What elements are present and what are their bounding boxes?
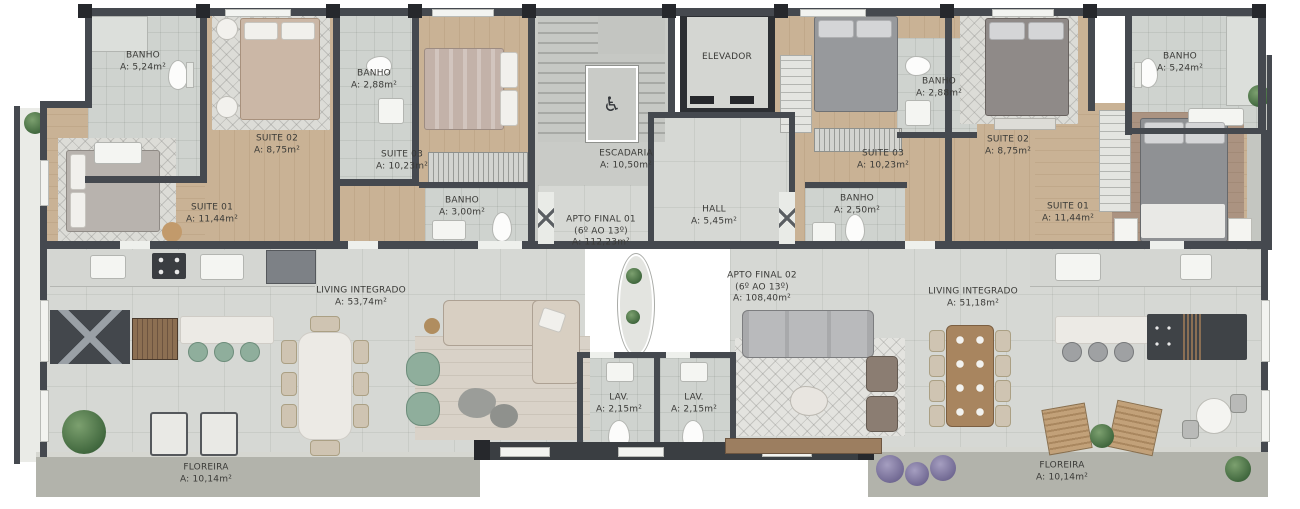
door-gap xyxy=(478,241,522,249)
unit-floors: (6º AO 13º) xyxy=(566,226,636,238)
vanity-sink xyxy=(432,220,466,240)
room-name: LIVING INTEGRADO xyxy=(316,285,406,297)
wall-hall-top xyxy=(648,112,795,118)
room-area: A: 5,45m² xyxy=(691,216,737,228)
window xyxy=(40,300,49,362)
room-name: LAV. xyxy=(596,392,642,404)
tv-console xyxy=(725,438,882,454)
pillow xyxy=(500,52,518,88)
pier xyxy=(522,4,536,18)
room-name: HALL xyxy=(691,204,737,216)
grill-module xyxy=(50,310,130,364)
room-area: A: 11,44m² xyxy=(186,214,238,226)
room-area: A: 2,50m² xyxy=(834,205,880,217)
unit-label-apto2: APTO FINAL 02 (6º AO 13º) A: 108,40m² xyxy=(727,270,797,305)
lounge-chair xyxy=(150,412,188,456)
wall-segment xyxy=(1125,8,1132,135)
dining-chair xyxy=(281,404,297,428)
dining-chair xyxy=(310,440,340,456)
island-counter-apto2 xyxy=(1055,316,1149,344)
entry-door-apto1 xyxy=(538,192,554,244)
lavender-plant xyxy=(930,455,956,481)
room-area: A: 10,14m² xyxy=(180,474,232,486)
toilet-tank xyxy=(186,62,194,88)
lav1-door xyxy=(590,352,614,358)
dining-chair xyxy=(281,340,297,364)
wall-segment xyxy=(333,8,340,248)
room-area: A: 10,14m² xyxy=(1036,472,1088,484)
dining-table-apto2 xyxy=(946,325,994,427)
wall-banho300-top xyxy=(419,182,532,188)
nightstand xyxy=(1114,218,1138,242)
lounge-chair xyxy=(200,412,238,456)
unit-area: A: 112,23m² xyxy=(566,238,636,250)
shrub-plant xyxy=(1225,456,1251,482)
lounge-plant xyxy=(1090,424,1114,448)
room-label-lav-apto1: LAV. A: 2,15m² xyxy=(596,392,642,415)
dining-chair xyxy=(281,372,297,396)
unit-label-apto1: APTO FINAL 01 (6º AO 13º) A: 112,23m² xyxy=(566,214,636,249)
stool xyxy=(1062,342,1082,362)
room-label-banho250-apto2: BANHO A: 2,50m² xyxy=(834,193,880,216)
room-area: A: 2,15m² xyxy=(596,404,642,416)
vanity-sink xyxy=(94,142,142,164)
dining-chair xyxy=(353,372,369,396)
nightstand xyxy=(1228,218,1252,242)
window xyxy=(992,9,1054,17)
wall-lav-mid xyxy=(654,352,660,452)
pier xyxy=(326,4,340,18)
stool xyxy=(240,342,260,362)
pillow xyxy=(500,90,518,126)
lavender-plant xyxy=(876,455,904,483)
pier xyxy=(1252,4,1266,18)
clothes-rack xyxy=(428,152,528,184)
room-name: SUITE 02 xyxy=(254,133,300,145)
room-name: LIVING INTEGRADO xyxy=(928,286,1018,298)
dining-chair xyxy=(310,316,340,332)
room-name: BANHO xyxy=(834,193,880,205)
charcoal-grill xyxy=(132,318,178,360)
room-area: A: 51,18m² xyxy=(928,298,1018,310)
room-area: A: 53,74m² xyxy=(316,297,406,309)
armchair-green xyxy=(406,352,440,386)
room-area: A: 10,23m² xyxy=(857,160,909,172)
kitchen-sink xyxy=(90,255,126,279)
lavender-plant xyxy=(905,462,929,486)
dining-chair xyxy=(929,330,945,352)
room-name: FLOREIRA xyxy=(180,462,232,474)
window xyxy=(40,160,49,206)
pier xyxy=(78,4,92,18)
pier xyxy=(774,4,788,18)
dining-chair xyxy=(995,330,1011,352)
wall-segment xyxy=(945,8,952,247)
pillow xyxy=(244,22,278,40)
pillow xyxy=(70,192,86,228)
wall-right-upper xyxy=(1258,8,1266,133)
toilet-tank xyxy=(1134,62,1142,88)
pier xyxy=(662,4,676,18)
room-label-suite03-apto2: SUITE 03 A: 10,23m² xyxy=(857,148,909,171)
wall-left-upper xyxy=(85,8,92,108)
dining-chair xyxy=(353,340,369,364)
room-name: BANHO xyxy=(120,50,166,62)
kitchen-sink xyxy=(1180,254,1212,280)
sliding-door xyxy=(500,447,550,457)
wall-segment xyxy=(200,8,207,180)
wall-banho288l-bottom xyxy=(338,179,419,186)
window xyxy=(1261,390,1270,442)
coffee-table xyxy=(790,386,828,416)
dining-chair xyxy=(929,405,945,427)
wall-segment xyxy=(1088,8,1095,111)
room-label-floreira-left: FLOREIRA A: 10,14m² xyxy=(180,462,232,485)
sliding-door xyxy=(618,447,664,457)
grill-station xyxy=(1147,314,1247,360)
pouf xyxy=(216,18,238,40)
pillow xyxy=(856,20,892,38)
room-label-lav-apto2: LAV. A: 2,15m² xyxy=(671,392,717,415)
room-label-banho-tl: BANHO A: 5,24m² xyxy=(120,50,166,73)
wall-terrace-left xyxy=(14,106,20,464)
double-sink xyxy=(1055,253,1101,281)
room-name: ESCADARIA xyxy=(599,148,653,160)
wall-lav-left xyxy=(577,352,583,452)
entry-door-apto2 xyxy=(779,192,795,244)
room-label-suite02-apto2: SUITE 02 A: 8,75m² xyxy=(985,134,1031,157)
pillow xyxy=(818,20,854,38)
room-area: A: 11,44m² xyxy=(1042,213,1094,225)
pillow xyxy=(1028,22,1064,40)
room-name: SUITE 01 xyxy=(186,202,238,214)
dining-chair xyxy=(929,355,945,377)
room-label-banho-tr: BANHO A: 5,24m² xyxy=(1157,51,1203,74)
room-name: FLOREIRA xyxy=(1036,460,1088,472)
room-name: BANHO xyxy=(439,195,485,207)
stool xyxy=(214,342,234,362)
pillow xyxy=(70,154,86,190)
pillow xyxy=(989,22,1025,40)
floor-plant xyxy=(62,410,106,454)
unit-name: APTO FINAL 01 xyxy=(566,214,636,226)
wall-segment xyxy=(668,8,675,115)
room-label-suite01-apto1: SUITE 01 A: 11,44m² xyxy=(186,202,238,225)
room-label-floreira-right: FLOREIRA A: 10,14m² xyxy=(1036,460,1088,483)
floor-plan: ♿ xyxy=(0,0,1300,509)
bed-suite03-apto1 xyxy=(424,48,504,130)
room-name: SUITE 03 xyxy=(857,148,909,160)
window xyxy=(800,9,866,17)
room-label-banho288-apto2: BANHO A: 2,88m² xyxy=(916,76,962,99)
stool xyxy=(1088,342,1108,362)
slat-lounge-chair xyxy=(1108,400,1163,457)
room-name: BANHO xyxy=(1157,51,1203,63)
fridge xyxy=(266,250,316,284)
armchair-brown xyxy=(866,396,898,432)
room-name: ELEVADOR xyxy=(702,52,752,64)
unit-floors: (6º AO 13º) xyxy=(727,282,797,294)
room-label-suite02-apto1: SUITE 02 A: 8,75m² xyxy=(254,133,300,156)
stair-landing xyxy=(598,14,665,54)
coffee-table xyxy=(490,404,518,428)
dining-chair xyxy=(353,404,369,428)
room-area: A: 5,24m² xyxy=(120,62,166,74)
wall-hall-left xyxy=(648,115,654,248)
room-name: SUITE 03 xyxy=(376,149,428,161)
closet xyxy=(780,55,812,133)
room-area: A: 10,50m² xyxy=(599,160,653,172)
room-name: SUITE 02 xyxy=(985,134,1031,146)
toilet xyxy=(492,212,512,242)
dining-chair xyxy=(995,355,1011,377)
room-name: BANHO xyxy=(916,76,962,88)
planter-plant xyxy=(626,310,640,324)
vanity-sink xyxy=(378,98,404,124)
vanity-sink xyxy=(905,100,931,126)
shower xyxy=(90,16,148,52)
lav-sink xyxy=(606,362,634,382)
room-name: LAV. xyxy=(671,392,717,404)
wall-lav-right xyxy=(730,352,736,452)
door-gap xyxy=(348,241,378,249)
room-name: SUITE 01 xyxy=(1042,201,1094,213)
dining-chair xyxy=(995,405,1011,427)
pier xyxy=(940,4,954,18)
pillow xyxy=(281,22,315,40)
island-counter-apto1 xyxy=(180,316,274,344)
room-area: A: 10,23m² xyxy=(376,161,428,173)
lav2-door xyxy=(666,352,690,358)
room-area: A: 8,75m² xyxy=(985,146,1031,158)
room-area: A: 2,88m² xyxy=(916,88,962,100)
wall-banho-tl-bottom xyxy=(85,176,207,183)
stool xyxy=(1114,342,1134,362)
elevator-door-left xyxy=(690,96,714,104)
room-label-living-apto2: LIVING INTEGRADO A: 51,18m² xyxy=(928,286,1018,309)
toilet xyxy=(168,60,188,90)
toilet xyxy=(845,214,865,244)
cooktop xyxy=(152,253,186,279)
duvet xyxy=(1141,204,1225,238)
room-area: A: 2,88m² xyxy=(351,80,397,92)
wall-banho250-top xyxy=(805,182,907,188)
room-area: A: 3,00m² xyxy=(439,207,485,219)
hall-floor xyxy=(648,115,795,248)
room-name: BANHO xyxy=(351,68,397,80)
round-jute-rug xyxy=(162,222,182,242)
wall-banho288r-bottom xyxy=(897,132,977,138)
lav-sink xyxy=(680,362,708,382)
bench xyxy=(994,118,1056,130)
window xyxy=(1261,300,1270,362)
room-area: A: 5,24m² xyxy=(1157,63,1203,75)
wall-segment xyxy=(528,8,535,247)
window xyxy=(225,9,291,17)
room-label-banho288-apto1: BANHO A: 2,88m² xyxy=(351,68,397,91)
wall-banho-tr-bottom xyxy=(1130,128,1265,134)
door-gap xyxy=(905,241,935,249)
wheelchair-icon: ♿ xyxy=(586,66,638,142)
slat-lounge-chair xyxy=(1041,403,1092,456)
room-label-elevador: ELEVADOR xyxy=(702,52,752,64)
accessible-glyph: ♿ xyxy=(603,92,621,116)
door-gap xyxy=(120,241,150,249)
room-area: A: 2,15m² xyxy=(671,404,717,416)
armchair-green xyxy=(406,392,440,426)
pier xyxy=(408,4,422,18)
room-label-living-apto1: LIVING INTEGRADO A: 53,74m² xyxy=(316,285,406,308)
stool xyxy=(188,342,208,362)
pier xyxy=(196,4,210,18)
pier xyxy=(1083,4,1097,18)
planter-plant xyxy=(626,268,642,284)
dining-chair xyxy=(995,380,1011,402)
dining-table-apto1 xyxy=(298,332,352,440)
side-table xyxy=(424,318,440,334)
bistro-table xyxy=(1196,398,1232,434)
room-label-hall: HALL A: 5,45m² xyxy=(691,204,737,227)
bistro-chair xyxy=(1230,394,1247,413)
wall-left-jog xyxy=(40,101,92,108)
unit-area: A: 108,40m² xyxy=(727,294,797,306)
window xyxy=(432,9,494,17)
armchair-brown xyxy=(866,356,898,392)
sofa-apto2 xyxy=(742,310,874,358)
window xyxy=(40,390,49,442)
pier xyxy=(474,440,490,460)
room-label-banho300-apto1: BANHO A: 3,00m² xyxy=(439,195,485,218)
floreira-left-ledge xyxy=(36,452,480,457)
bistro-chair xyxy=(1182,420,1199,439)
pouf xyxy=(216,96,238,118)
floreira-left-body xyxy=(36,455,480,497)
elevator-door-right xyxy=(730,96,754,104)
dining-chair xyxy=(929,380,945,402)
room-label-escadaria: ESCADARIA A: 10,50m² xyxy=(599,148,653,171)
room-label-suite01-apto2: SUITE 01 A: 11,44m² xyxy=(1042,201,1094,224)
room-label-suite03-apto1: SUITE 03 A: 10,23m² xyxy=(376,149,428,172)
room-area: A: 8,75m² xyxy=(254,145,300,157)
door-gap xyxy=(1150,241,1184,249)
double-sink xyxy=(200,254,244,280)
unit-name: APTO FINAL 02 xyxy=(727,270,797,282)
